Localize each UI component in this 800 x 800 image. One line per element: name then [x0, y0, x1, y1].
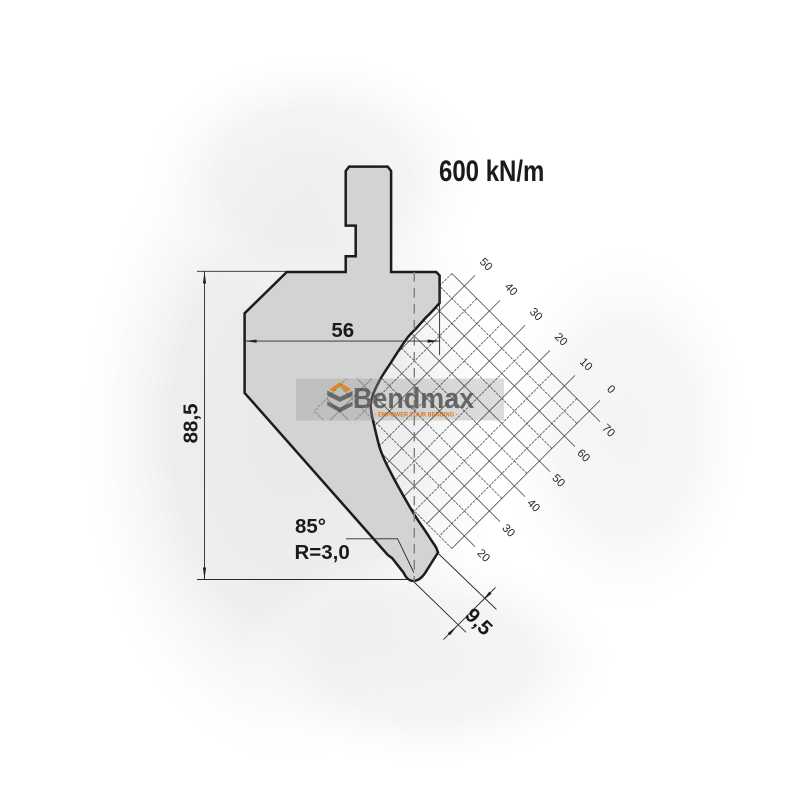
svg-text:R=3,0: R=3,0	[295, 541, 350, 564]
svg-text:600 kN/m: 600 kN/m	[439, 153, 544, 187]
svg-text:85°: 85°	[295, 515, 326, 538]
svg-text:- EMPOWER YOUR BENDING -: - EMPOWER YOUR BENDING -	[375, 412, 458, 419]
svg-text:56: 56	[331, 319, 354, 342]
svg-text:88,5: 88,5	[180, 403, 203, 443]
